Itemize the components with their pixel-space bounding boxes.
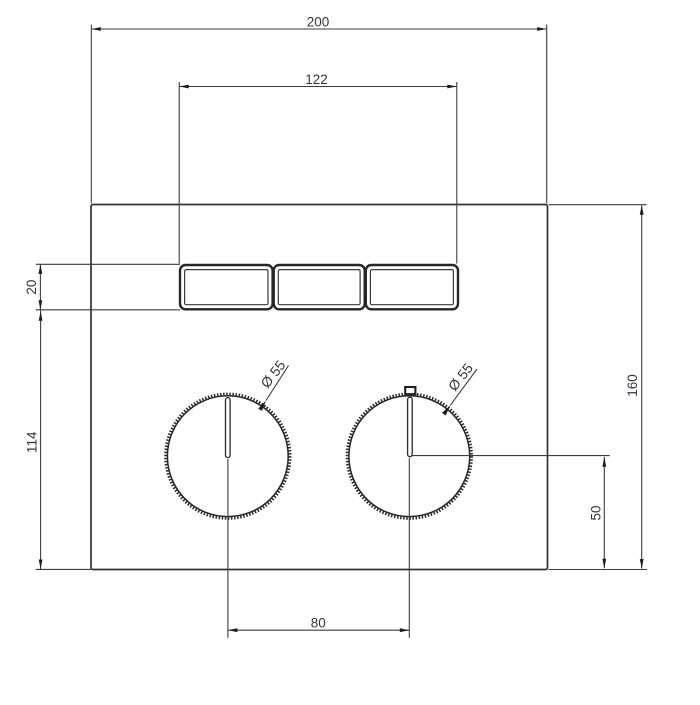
svg-text:122: 122	[305, 72, 328, 87]
svg-text:80: 80	[311, 616, 326, 631]
svg-text:160: 160	[625, 374, 640, 397]
svg-text:200: 200	[307, 15, 330, 30]
svg-text:20: 20	[24, 280, 39, 295]
svg-text:50: 50	[589, 505, 604, 520]
svg-text:114: 114	[25, 431, 40, 453]
